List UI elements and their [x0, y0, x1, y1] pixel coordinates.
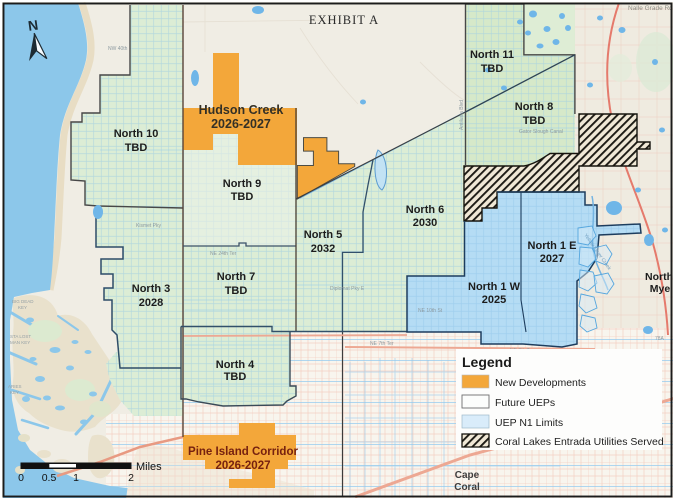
svg-text:North 6: North 6 — [406, 204, 445, 216]
svg-text:TBD: TBD — [225, 285, 248, 297]
svg-text:Future UEPs: Future UEPs — [495, 397, 555, 409]
svg-text:North 3: North 3 — [132, 283, 171, 295]
svg-text:Kismet Pky: Kismet Pky — [136, 223, 162, 229]
svg-text:NE 24th Ter: NE 24th Ter — [210, 251, 237, 257]
svg-text:0.5: 0.5 — [42, 472, 57, 484]
svg-text:Diplomat Pky E: Diplomat Pky E — [330, 286, 365, 292]
svg-text:2027: 2027 — [540, 253, 564, 265]
svg-text:STA LOST: STA LOST — [10, 334, 31, 339]
svg-text:North 11: North 11 — [470, 49, 514, 61]
svg-text:EXHIBIT A: EXHIBIT A — [309, 13, 379, 27]
svg-text:Legend: Legend — [462, 354, 512, 370]
svg-text:2028: 2028 — [139, 297, 163, 309]
svg-text:2032: 2032 — [311, 243, 335, 255]
svg-text:78A: 78A — [655, 336, 665, 342]
svg-text:North 7: North 7 — [217, 271, 256, 283]
svg-text:2: 2 — [128, 472, 134, 484]
svg-text:Miles: Miles — [136, 461, 162, 473]
svg-text:Nalle Grade Rd E: Nalle Grade Rd E — [628, 5, 675, 12]
svg-text:TBD: TBD — [125, 142, 148, 154]
svg-text:North 10: North 10 — [114, 128, 159, 140]
svg-text:ARIES: ARIES — [8, 384, 22, 389]
svg-text:North 5: North 5 — [304, 229, 343, 241]
svg-text:KEY: KEY — [18, 305, 27, 310]
svg-text:2025: 2025 — [482, 294, 506, 306]
svg-text:MAN KEY: MAN KEY — [10, 340, 30, 345]
svg-text:Cape: Cape — [455, 470, 480, 481]
svg-text:NW 40th: NW 40th — [108, 46, 128, 52]
svg-text:Coral: Coral — [454, 482, 480, 493]
svg-text:North 4: North 4 — [216, 359, 255, 371]
svg-text:Mye: Mye — [650, 283, 671, 295]
svg-text:New Developments: New Developments — [495, 377, 586, 389]
svg-text:North 1 E: North 1 E — [528, 240, 577, 252]
svg-text:1: 1 — [73, 472, 79, 484]
svg-text:0: 0 — [18, 472, 24, 484]
svg-text:TBD: TBD — [523, 115, 546, 127]
svg-text:TBD: TBD — [224, 371, 247, 383]
svg-text:KEY: KEY — [10, 390, 19, 395]
svg-text:North 8: North 8 — [515, 101, 554, 113]
svg-text:UEP N1 Limits: UEP N1 Limits — [495, 417, 563, 429]
svg-text:BIG DEAD: BIG DEAD — [12, 299, 34, 304]
svg-text:Antilusia Blvd: Antilusia Blvd — [459, 100, 465, 130]
svg-text:2026-2027: 2026-2027 — [216, 460, 271, 472]
svg-text:Hudson Creek: Hudson Creek — [199, 103, 284, 117]
svg-text:TBD: TBD — [481, 63, 504, 75]
svg-text:North: North — [645, 271, 673, 283]
svg-text:Pine Island Corridor: Pine Island Corridor — [188, 446, 298, 458]
svg-text:NE 10th St: NE 10th St — [418, 308, 443, 314]
svg-text:North 9: North 9 — [223, 178, 262, 190]
svg-text:2026-2027: 2026-2027 — [211, 117, 271, 131]
svg-text:Coral Lakes Entrada Utilities: Coral Lakes Entrada Utilities Served — [495, 436, 664, 448]
svg-text:North 1 W: North 1 W — [468, 281, 521, 293]
svg-text:2030: 2030 — [413, 217, 437, 229]
svg-text:Gator Slough Canal: Gator Slough Canal — [519, 129, 563, 135]
svg-text:NE 7th Ter: NE 7th Ter — [370, 341, 394, 347]
svg-text:TBD: TBD — [231, 191, 254, 203]
